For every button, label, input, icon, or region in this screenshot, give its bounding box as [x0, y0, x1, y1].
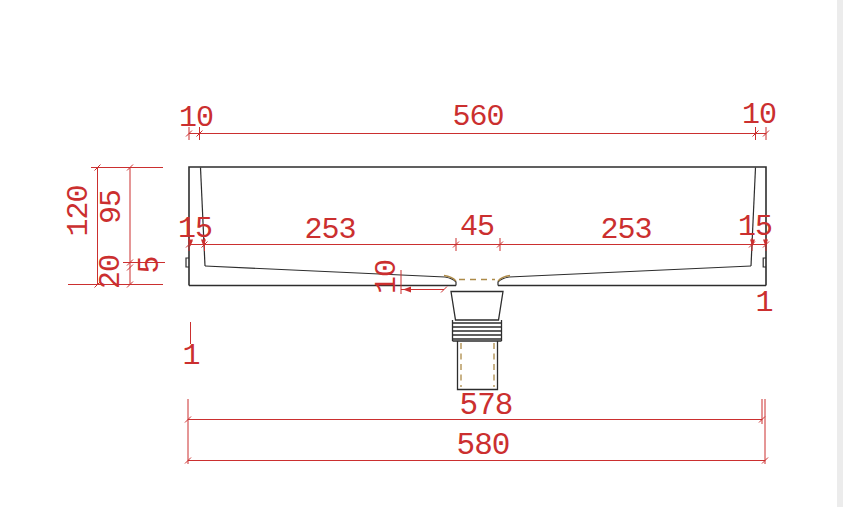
dim-label-height-total: 120 [64, 185, 94, 236]
technical-drawing-canvas: 10 560 10 120 95 20 5 15 253 45 253 15 1… [0, 0, 843, 507]
dimension-arrowheads [188, 240, 768, 293]
right-edge-strip [837, 0, 843, 507]
dim-label-depth-inner: 95 [97, 190, 127, 224]
drain-fitting [451, 292, 503, 390]
dim-label-width-outer: 580 [457, 430, 510, 461]
drawing-linework [0, 0, 843, 507]
dimension-lines [68, 127, 769, 464]
dim-label-floor-thickness: 10 [372, 260, 402, 294]
dim-label-edge-right: 1 [755, 288, 772, 318]
dim-label-drain-width: 45 [460, 212, 494, 242]
dim-label-floor-left: 253 [304, 215, 355, 245]
dim-label-top-right: 10 [742, 100, 776, 130]
dim-label-wall-right: 15 [738, 212, 772, 242]
dim-label-width-inner: 578 [460, 390, 513, 421]
dim-label-top-center: 560 [452, 102, 503, 132]
dim-label-floor-right: 253 [600, 215, 651, 245]
dim-label-wall-left: 15 [178, 214, 212, 244]
dim-label-top-left: 10 [179, 103, 213, 133]
dim-label-edge-left: 1 [182, 341, 199, 371]
dim-label-base-height: 20 [96, 255, 126, 289]
dim-label-rim-step: 5 [135, 256, 165, 273]
